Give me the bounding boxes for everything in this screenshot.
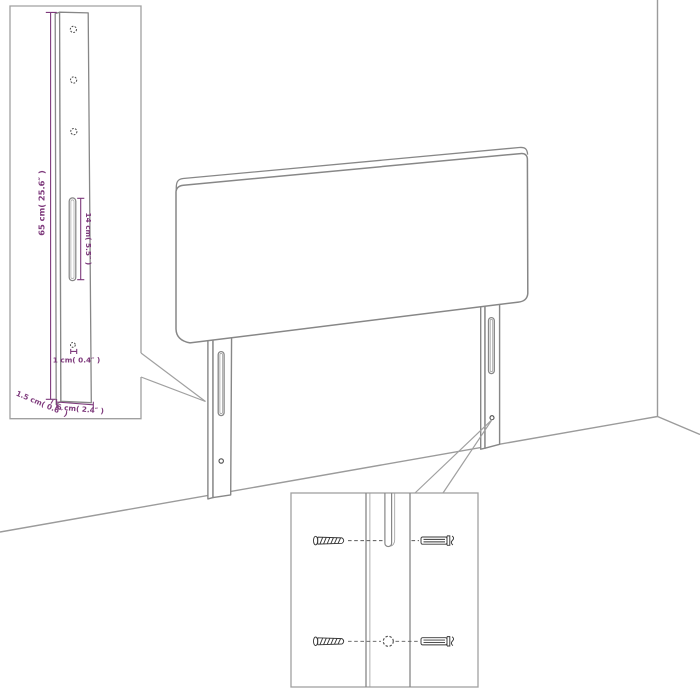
label-hole-diameter: 1 cm( 0.4″ ) xyxy=(53,355,100,364)
inset-callout-line-upper xyxy=(141,353,206,402)
left-leg-slot xyxy=(218,352,224,416)
mounting-screw-top xyxy=(314,536,344,545)
mounting-detail-inset xyxy=(291,420,492,687)
inset-callout-line-lower xyxy=(141,377,206,402)
right-leg-slot xyxy=(489,318,495,374)
inset-top-hole xyxy=(70,26,76,32)
inset-middle-hole xyxy=(71,77,77,83)
label-leg-height: 65 cm( 25.6″ ) xyxy=(36,170,46,236)
floor-line-right xyxy=(658,417,700,435)
mount-callout-line-left xyxy=(415,420,492,493)
left-leg-screw-hole xyxy=(219,459,223,463)
assembly-diagram: 65 cm( 25.6″ ) 14 cm( 5.5″ ) 1 cm( 0.4″ … xyxy=(0,0,700,700)
leg-cutouts xyxy=(218,318,494,464)
inset-small-screw-hole xyxy=(71,343,76,348)
headboard-assembly-drawing: 65 cm( 25.6″ ) 14 cm( 5.5″ ) 1 cm( 0.4″ … xyxy=(0,0,700,700)
mounting-screw-bottom xyxy=(314,637,344,646)
label-slot-length: 14 cm( 5.5″ ) xyxy=(84,213,93,266)
mount-hole xyxy=(383,636,393,646)
inset-lower-hole xyxy=(71,129,77,135)
left-leg-side-face xyxy=(208,333,213,499)
panel-face xyxy=(176,154,528,343)
inset-leg-slot xyxy=(69,198,76,281)
headboard-panel xyxy=(176,147,528,342)
right-leg-screw-hole xyxy=(490,416,494,420)
mount-callout-line-right xyxy=(443,420,492,493)
